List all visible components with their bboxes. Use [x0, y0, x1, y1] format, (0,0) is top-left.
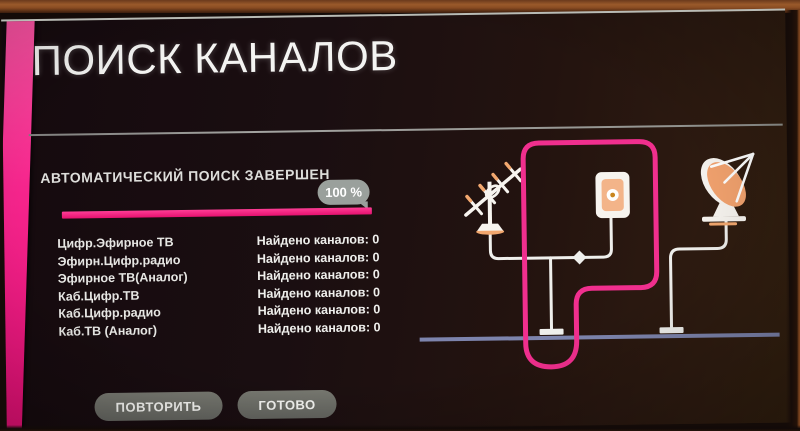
repeat-button[interactable]: ПОВТОРИТЬ [94, 391, 222, 421]
result-label: Эфирн.Цифр.радио [57, 253, 180, 269]
cable-junction-node [572, 250, 586, 264]
satellite-cable [670, 220, 727, 327]
progress-bar-fill [62, 207, 372, 218]
antenna-icon [465, 163, 521, 235]
result-label: Цифр.Эфирное ТВ [57, 235, 173, 251]
cable-wall-plug [540, 329, 564, 335]
result-count: Найдено каналов: 0 [257, 267, 380, 283]
magenta-accent-stripe [1, 15, 35, 431]
progress-bar [62, 207, 372, 218]
search-results-list: Цифр.Эфирное ТВ Найдено каналов: 0 Эфирн… [57, 232, 380, 341]
connection-diagram [411, 116, 787, 393]
wall-socket-icon [595, 172, 630, 218]
result-count: Найдено каналов: 0 [258, 320, 381, 336]
result-label: Каб.ТВ (Аналог) [58, 323, 157, 338]
done-button[interactable]: ГОТОВО [237, 390, 337, 419]
baseboard-line [420, 333, 780, 342]
satellite-dish-icon [692, 149, 754, 225]
tv-photo: ПОИСК КАНАЛОВ АВТОМАТИЧЕСКИЙ ПОИСК ЗАВЕР… [0, 0, 800, 431]
result-label: Каб.Цифр.ТВ [58, 288, 140, 303]
tv-screen: ПОИСК КАНАЛОВ АВТОМАТИЧЕСКИЙ ПОИСК ЗАВЕР… [1, 9, 791, 431]
antenna-cable [490, 218, 613, 330]
result-label: Эфирное ТВ(Аналог) [58, 270, 188, 286]
result-row-cable-analog-tv: Каб.ТВ (Аналог) Найдено каналов: 0 [58, 320, 380, 341]
result-count: Найдено каналов: 0 [257, 250, 380, 266]
tv-bezel-bottom [0, 425, 800, 431]
result-count: Найдено каналов: 0 [257, 232, 380, 248]
page-title: ПОИСК КАНАЛОВ [31, 32, 398, 85]
search-status-label: АВТОМАТИЧЕСКИЙ ПОИСК ЗАВЕРШЕН [40, 166, 330, 186]
tv-bezel-right [786, 10, 800, 431]
result-count: Найдено каналов: 0 [258, 302, 381, 318]
satellite-wall-plug [660, 327, 684, 333]
progress-percent-badge: 100 % [317, 179, 369, 205]
result-label: Каб.Цифр.радио [58, 305, 161, 320]
result-count: Найдено каналов: 0 [257, 285, 380, 301]
action-buttons: ПОВТОРИТЬ ГОТОВО [94, 390, 336, 421]
